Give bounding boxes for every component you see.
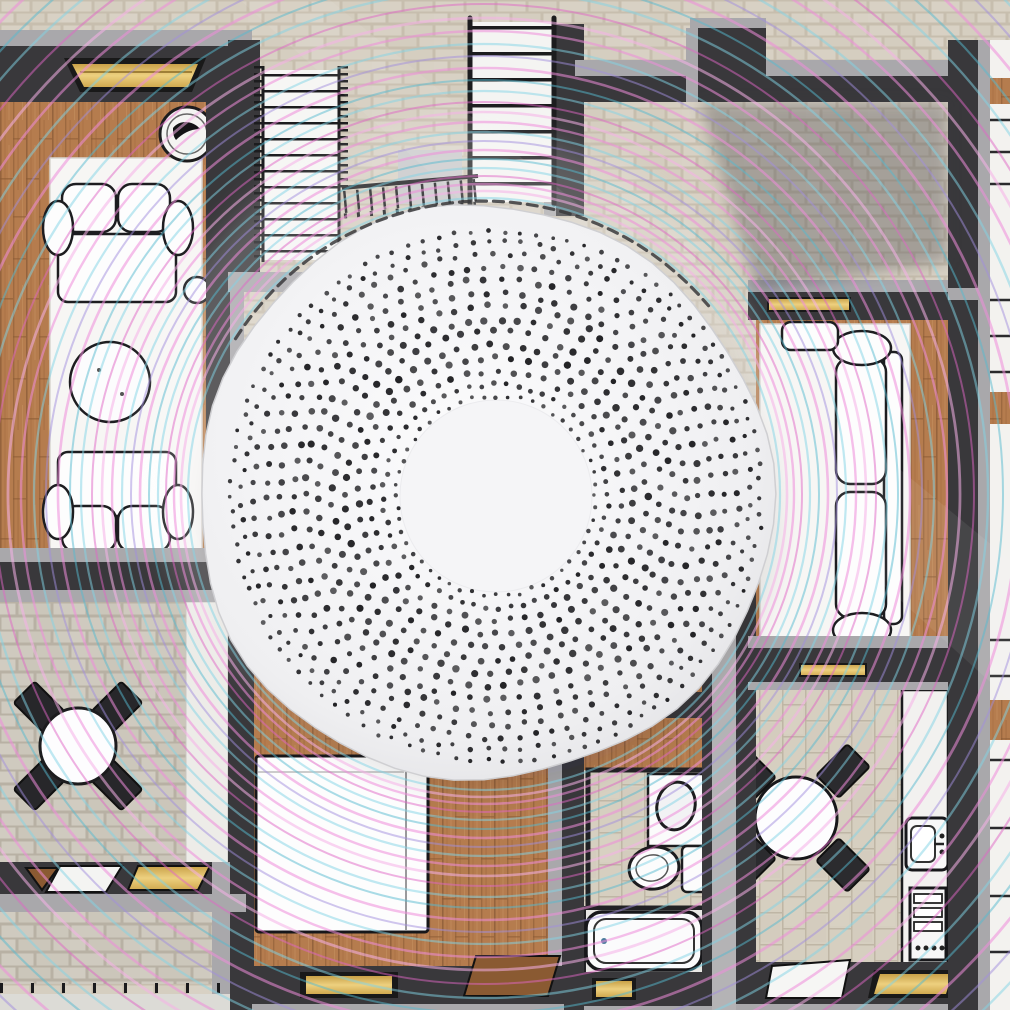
doormat-gold [868, 970, 958, 998]
scene-canvas [0, 0, 1010, 1010]
dining-kitchen [722, 690, 948, 964]
patio-table [40, 708, 116, 784]
wall-clock [160, 107, 214, 161]
lit-window [64, 58, 206, 92]
product-scene [0, 0, 1010, 1010]
detector-hub [400, 400, 592, 592]
sofa [43, 184, 193, 302]
doormat-wood [464, 956, 560, 996]
